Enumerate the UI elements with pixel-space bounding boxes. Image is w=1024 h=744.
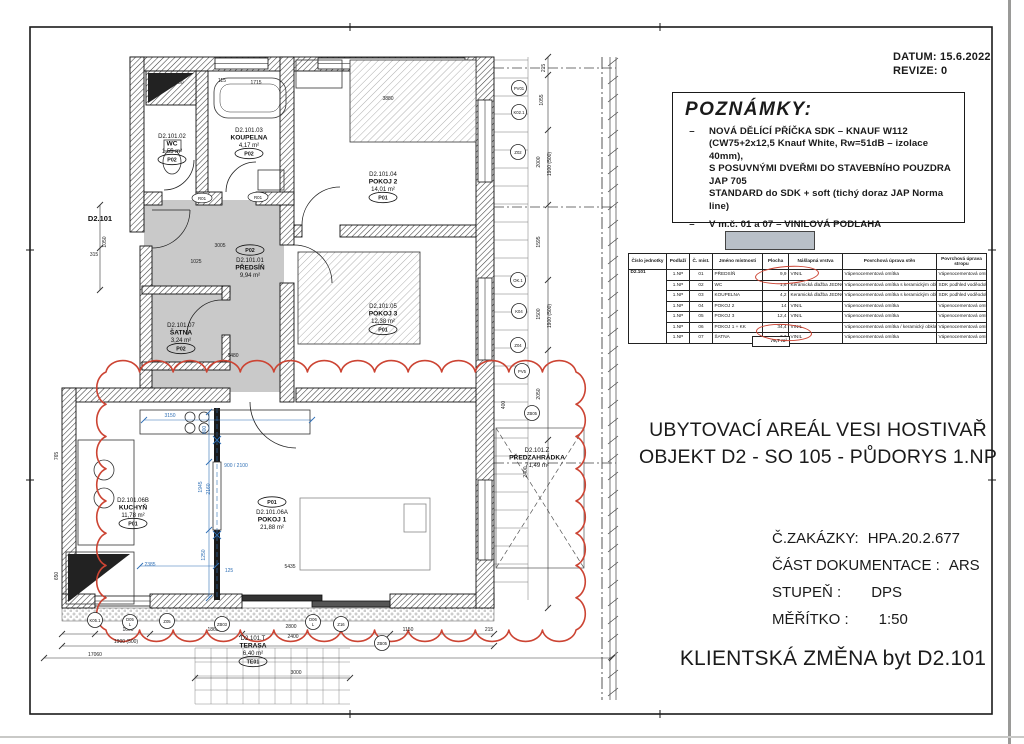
- svg-text:KUCHYŇ: KUCHYŇ: [119, 503, 147, 512]
- svg-text:ZB03: ZB03: [217, 622, 228, 627]
- dimension-label: 3005: [214, 243, 225, 249]
- kitchen-left-counter: [78, 440, 134, 545]
- dimension-label: 1595: [536, 236, 542, 247]
- dimension-label: 2050: [536, 388, 542, 399]
- element-tag: Z04: [511, 338, 526, 353]
- element-tag: K05.1: [88, 613, 103, 628]
- svg-text:KOUPELNA: KOUPELNA: [231, 135, 268, 142]
- dimension-label: 5435: [284, 564, 295, 570]
- dimension-label: 1500: [536, 308, 542, 319]
- svg-text:21,88 m²: 21,88 m²: [260, 525, 284, 531]
- svg-text:P02: P02: [244, 152, 253, 158]
- svg-text:WC: WC: [167, 141, 178, 148]
- object-title: OBJEKT D2 - SO 105 - PŮDORYS 1.NP: [630, 444, 1006, 471]
- dimension-label: 215: [541, 64, 547, 73]
- svg-text:D2.101.04: D2.101.04: [369, 172, 397, 178]
- svg-text:POKOJ 3: POKOJ 3: [369, 311, 398, 318]
- dimension-label: 17060: [88, 652, 102, 658]
- terrace-paving: [195, 648, 350, 704]
- element-tag: Z16: [334, 617, 349, 632]
- scan-edge: [1008, 0, 1011, 744]
- table-row: 1.NP05POKOJ 312,4VINILVápenocementová om…: [629, 312, 987, 323]
- note-item: – NOVÁ DĚLÍCÍ PŘÍČKA SDK – KNAUF W112 (C…: [685, 126, 954, 213]
- svg-text:PŘEDSÍŇ: PŘEDSÍŇ: [235, 263, 265, 272]
- stamp-revize: REVIZE: 0: [893, 65, 991, 79]
- table-row: 1.NP07ŠATNA3,3VINILVápenocementová omítk…: [629, 333, 987, 344]
- scale: MĚŘÍTKO :1:50: [772, 612, 980, 627]
- svg-text:P02: P02: [176, 347, 185, 353]
- dimension-label: 2800: [285, 624, 296, 630]
- element-tag: K02.1: [512, 105, 527, 120]
- element-tag: ZB05: [375, 636, 390, 651]
- shaft: [146, 71, 196, 105]
- stamp-datum: DATUM: 15.6.2022: [893, 51, 991, 65]
- dimension-label: 315: [90, 252, 99, 258]
- element-tag: D06L: [306, 615, 321, 630]
- notes-box: POZNÁMKY: – NOVÁ DĚLÍCÍ PŘÍČKA SDK – KNA…: [672, 92, 965, 223]
- dimension-label: 1050: [102, 236, 108, 247]
- room-label: D2.101.06BKUCHYŇ11,78 m²P01: [117, 498, 149, 529]
- dimension-label: 1030: [172, 80, 183, 86]
- svg-text:D2.101.T: D2.101.T: [241, 636, 266, 642]
- svg-text:PV01: PV01: [514, 86, 525, 91]
- vinyl-floor-swatch: [725, 231, 815, 250]
- svg-text:TE01: TE01: [247, 660, 260, 666]
- dimension-label: 765: [54, 452, 60, 461]
- dimension-label: 800: [202, 426, 208, 435]
- scan-edge: [0, 736, 1024, 738]
- element-tag: Z02: [511, 145, 526, 160]
- table-row: 1.NP06POKOJ 1 + KK34,4VINILVápenocemento…: [629, 322, 987, 333]
- info-block: Č.ZAKÁZKY:HPA.20.2.677 ČÁST DOKUMENTACE …: [772, 531, 980, 639]
- dimension-label: 900 / 2100: [224, 463, 248, 469]
- dimension-label: 125: [225, 568, 234, 574]
- svg-text:D2.101.07: D2.101.07: [167, 323, 195, 329]
- dimension-label: 1900 (500): [114, 639, 139, 645]
- entrance-label: D2.101: [88, 214, 112, 223]
- svg-text:P01: P01: [128, 522, 137, 528]
- svg-text:P02: P02: [167, 158, 176, 164]
- svg-text:D2.101.03: D2.101.03: [235, 128, 263, 134]
- table-row: 1.NP04POKOJ 214VINILVápenocementová omít…: [629, 301, 987, 312]
- svg-text:ŠATNA: ŠATNA: [170, 328, 192, 337]
- svg-text:D2.101.05: D2.101.05: [369, 304, 397, 310]
- element-tag: D05L: [123, 615, 138, 630]
- dimension-label: 2385: [144, 562, 155, 568]
- room-label: D2.101.ZPŘEDZAHRÁDKA71,49 m²: [509, 448, 565, 469]
- drawing-title: UBYTOVACÍ AREÁL VESI HOSTIVAŘ OBJEKT D2 …: [630, 417, 1006, 471]
- dimension-label: 1055: [539, 94, 545, 105]
- svg-text:POKOJ 1: POKOJ 1: [258, 517, 287, 524]
- svg-text:R01: R01: [254, 195, 263, 200]
- room-schedule-table: Číslo jednotkyPodlaží Č. míst.Jméno míst…: [628, 253, 987, 344]
- note-item: – V m.č. 01 a 07 – VINILOVÁ PODLAHA: [685, 219, 954, 250]
- svg-text:TERASA: TERASA: [239, 643, 266, 650]
- room-label: D2.101.04POKOJ 214,01 m²P01: [369, 172, 398, 203]
- dimension-label: 3150: [164, 413, 175, 419]
- dimension-label: 1025: [190, 259, 201, 265]
- door-tag: R01: [248, 192, 268, 202]
- dimension-label: 215: [485, 627, 494, 633]
- svg-text:K02.1: K02.1: [514, 110, 526, 115]
- svg-text:K05.1: K05.1: [90, 618, 102, 623]
- stamp-block: DATUM: 15.6.2022 REVIZE: 0: [893, 51, 991, 79]
- table-row: 1.NP03KOUPELNA4,2Keramická dlažba JEDNOT…: [629, 291, 987, 302]
- svg-text:P01: P01: [378, 196, 387, 202]
- dimension-label: 115: [218, 78, 226, 84]
- svg-text:P02: P02: [245, 248, 254, 254]
- order-number: Č.ZAKÁZKY:HPA.20.2.677: [772, 531, 980, 546]
- svg-text:P01: P01: [378, 328, 387, 334]
- stage: STUPEŇ :DPS: [772, 585, 980, 600]
- svg-text:Z16: Z16: [337, 622, 345, 627]
- room-label: D2.101.06APOKOJ 121,88 m²P01: [256, 497, 288, 531]
- pillow: [404, 504, 426, 532]
- dimension-label: 2400: [287, 634, 298, 640]
- table-header-row: Číslo jednotkyPodlaží Č. míst.Jméno míst…: [629, 254, 987, 270]
- notes-title: POZNÁMKY:: [685, 99, 954, 121]
- svg-text:Z02: Z02: [514, 150, 522, 155]
- svg-text:D2.101.Z: D2.101.Z: [525, 448, 550, 454]
- svg-text:OK.1: OK.1: [513, 278, 523, 283]
- area-total: 79,7 m²: [752, 336, 790, 347]
- dimension-label: 3000: [290, 670, 301, 676]
- svg-text:9,94 m²: 9,94 m²: [240, 273, 260, 279]
- dimension-label: 1900 (500): [547, 152, 553, 177]
- element-tag: OK.1: [511, 273, 526, 288]
- element-tag: ZB05: [525, 406, 540, 421]
- new-partition: [213, 408, 221, 600]
- client-change-title: KLIENTSKÁ ZMĚNA byt D2.101: [660, 647, 1006, 671]
- door-tag: R01: [192, 193, 212, 203]
- svg-text:Z05: Z05: [163, 619, 171, 624]
- element-tag: PV01: [512, 81, 527, 96]
- svg-text:POKOJ 2: POKOJ 2: [369, 179, 398, 186]
- dimension-label: 400: [501, 401, 507, 410]
- room-label: D2.101.03KOUPELNA4,17 m²P02: [231, 128, 268, 159]
- element-tag: K04: [512, 304, 527, 319]
- drawing-sheet: { "stamp": { "datum": "DATUM: 15.6.2022"…: [0, 0, 1024, 744]
- svg-text:D2.101.06B: D2.101.06B: [117, 498, 149, 504]
- unit-number: D2.101: [629, 270, 667, 344]
- dimension-label: 2400: [523, 466, 529, 477]
- svg-text:Z04: Z04: [514, 343, 522, 348]
- svg-text:D2.101.06A: D2.101.06A: [256, 510, 288, 516]
- bed-room1: [300, 498, 430, 570]
- dimension-label: 1715: [250, 80, 261, 86]
- dimension-label: 2160: [206, 483, 212, 494]
- element-tag: PV5: [515, 364, 530, 379]
- svg-text:K04: K04: [515, 309, 523, 314]
- doc-part: ČÁST DOKUMENTACE :ARS: [772, 558, 980, 573]
- dimension-label: 1945: [198, 481, 204, 492]
- bed-room2: [350, 60, 476, 142]
- table-row: 1.NP02WC1,6Keramická dlažba JEDNOTKAVápe…: [629, 280, 987, 291]
- dimension-label: 2000: [536, 156, 542, 167]
- svg-text:PŘEDZAHRÁDKA: PŘEDZAHRÁDKA: [509, 453, 565, 462]
- svg-text:ZB05: ZB05: [527, 411, 538, 416]
- bed-room3: [298, 252, 420, 344]
- svg-text:D2.101.01: D2.101.01: [236, 258, 264, 264]
- facade-strip: [494, 57, 528, 600]
- dimension-label: 3880: [382, 96, 393, 102]
- dimension-label: 1480: [227, 353, 238, 359]
- dimension-label: 1150: [403, 627, 414, 633]
- element-tag: ZB03: [215, 617, 230, 632]
- svg-text:D2.101.02: D2.101.02: [158, 134, 186, 140]
- dimension-label: 1900 (500): [547, 304, 553, 329]
- table-row: D2.1011.NP01PŘEDSÍŇ9,9VINILVápenocemento…: [629, 270, 987, 281]
- dimension-label: 650: [54, 572, 60, 581]
- element-tag: Z05: [160, 614, 175, 629]
- svg-text:P01: P01: [267, 500, 276, 506]
- room-label: D2.101.02WC1,55 m²P02: [158, 134, 187, 165]
- svg-text:R01: R01: [198, 196, 207, 201]
- svg-text:ZB05: ZB05: [377, 641, 388, 646]
- project-title: UBYTOVACÍ AREÁL VESI HOSTIVAŘ: [630, 417, 1006, 444]
- dimension-label: 1250: [201, 549, 207, 560]
- svg-text:PV5: PV5: [518, 369, 527, 374]
